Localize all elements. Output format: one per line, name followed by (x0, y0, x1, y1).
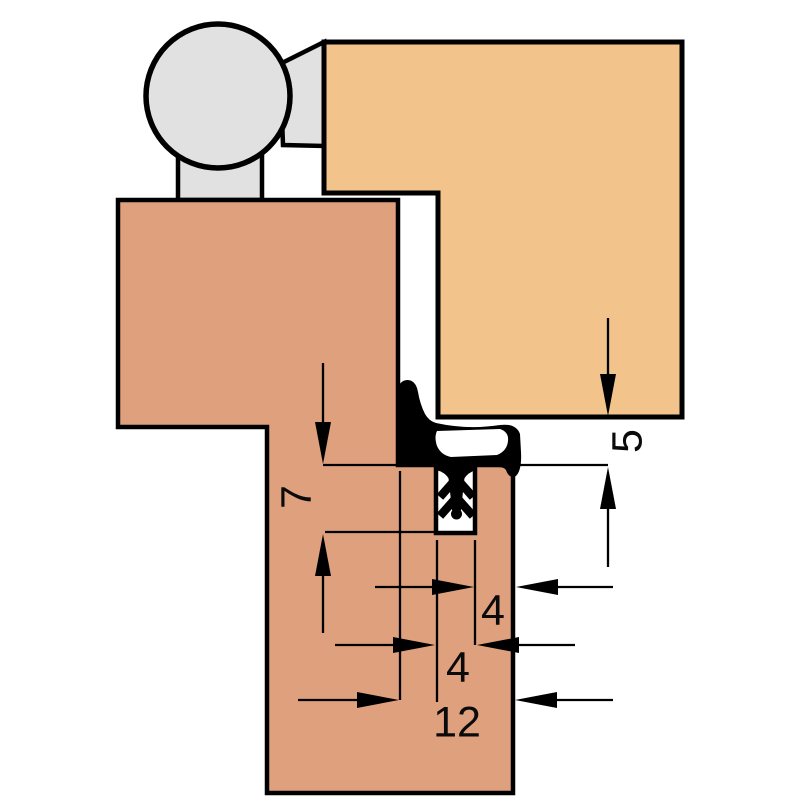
dim-label-groove-depth: 7 (276, 485, 319, 509)
dim-label-groove-width: 4 (446, 647, 470, 690)
dim-4a-left-arrow-icon (516, 579, 558, 595)
cross-section-drawing (0, 0, 800, 800)
dim-label-seal-gap: 5 (607, 429, 650, 453)
dim-label-rebate-width: 12 (433, 702, 481, 745)
dim-5-up-arrow-icon (600, 467, 616, 509)
dim-label-edge-to-groove: 4 (481, 590, 505, 633)
technical-drawing-canvas: 7 5 4 4 12 (0, 0, 800, 800)
hinge-knuckle (146, 24, 290, 168)
dim-12-left-arrow-icon (515, 692, 557, 708)
seal-anchor-tip (451, 509, 462, 520)
